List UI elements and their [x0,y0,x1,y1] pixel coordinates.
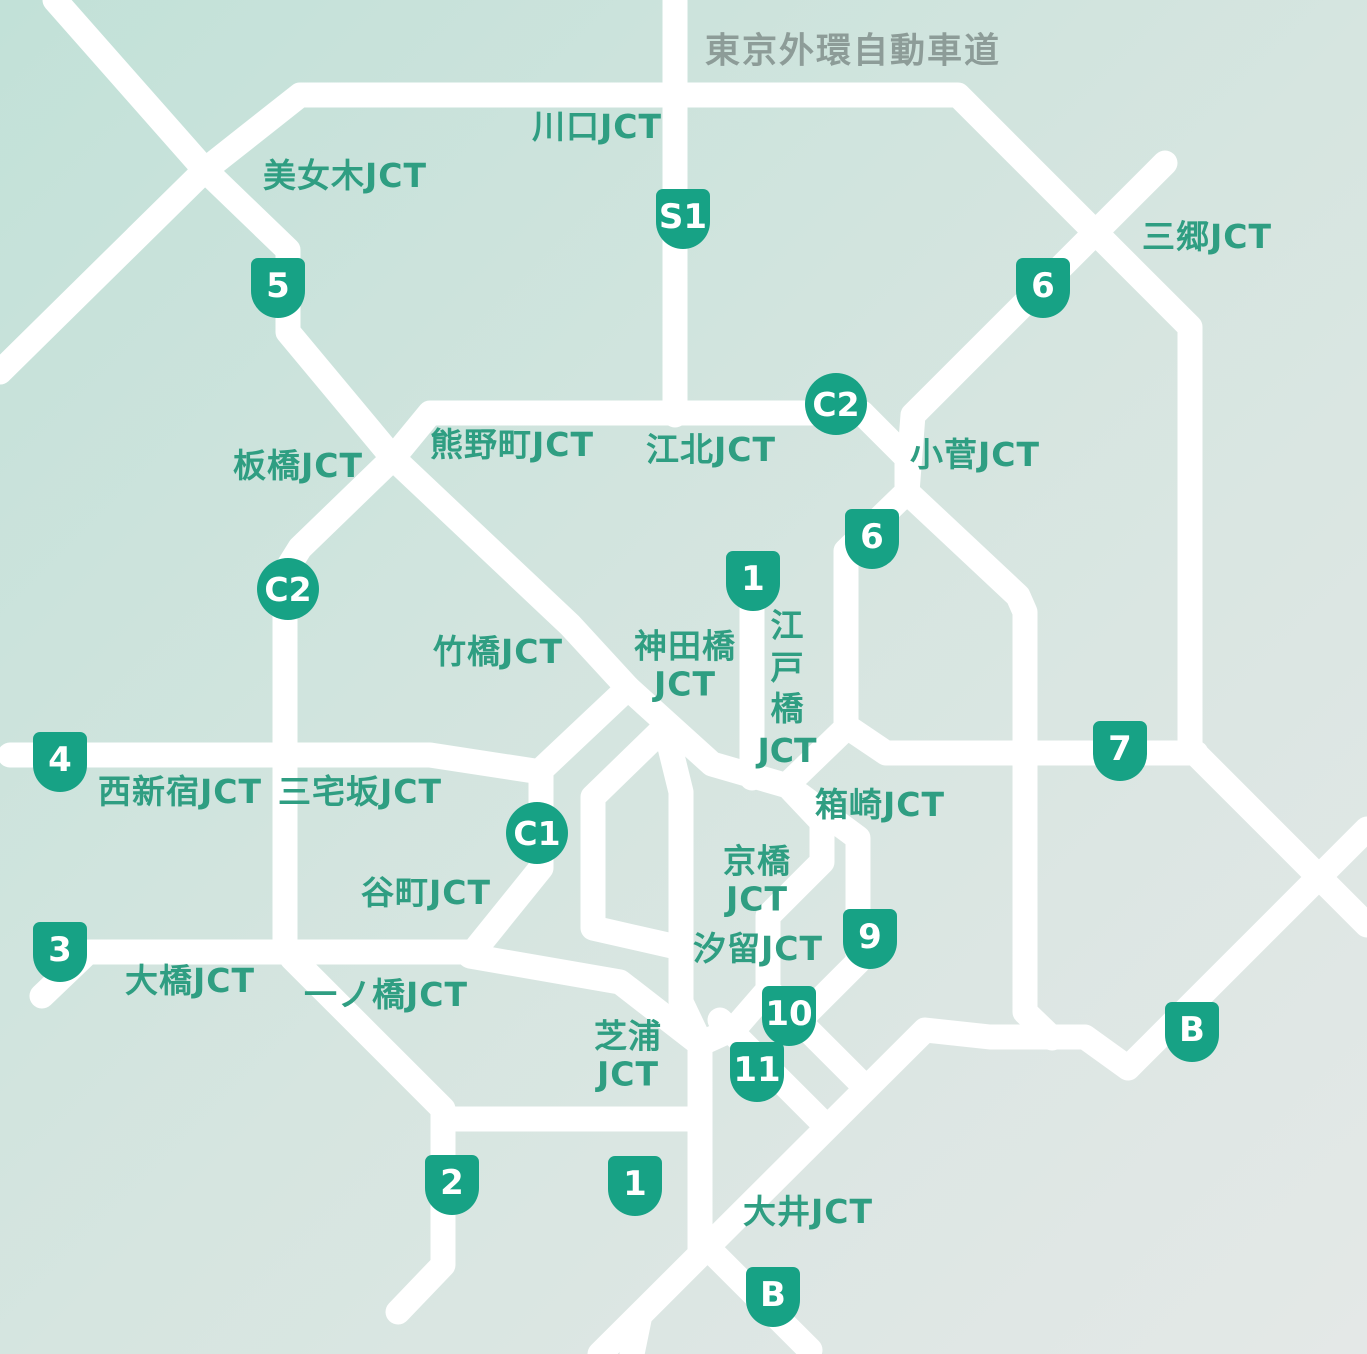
route-badge-c2-6: C2 [257,558,319,620]
junction-label-takebashi-jct: 竹橋JCT [433,633,563,671]
junction-label-edobashi-jct: 江 戸 橋 JCT [757,605,816,771]
map-title: 東京外環自動車道 [705,23,1001,74]
junction-label-kosuge-jct: 小菅JCT [910,436,1040,474]
junction-label-shibaura-jct: 芝浦 JCT [594,1017,662,1092]
junction-label-itabashi-jct: 板橋JCT [233,447,363,485]
junction-label-kumanocho-jct: 熊野町JCT [430,426,594,464]
route-badge-c1-9: C1 [506,802,568,864]
route-badge-s1-0: S1 [656,189,710,249]
junction-label-tanimachi-jct: 谷町JCT [361,874,491,912]
junction-label-ichinohashi-jct: 一ノ橋JCT [304,976,468,1014]
junction-label-ohashi-jct: 大橋JCT [125,962,255,1000]
route-badge-6-2: 6 [1016,258,1070,318]
route-badge-b-17: B [746,1267,800,1327]
route-badge-1-5: 1 [726,551,780,611]
route-badge-1-16: 1 [608,1156,662,1216]
route-badge-b-13: B [1165,1002,1219,1062]
junction-label-nishishinjuku-jct: 西新宿JCT [98,773,262,811]
road-gaikan-sw-arm [0,170,205,372]
road-bayshore-route [600,829,1367,1354]
road-gaikan-nw-arm [55,0,205,170]
route-badge-6-4: 6 [845,509,899,569]
route-badge-7-7: 7 [1093,721,1147,781]
junction-label-misato-jct: 三郷JCT [1142,218,1272,256]
junction-label-bijogi-jct: 美女木JCT [263,157,427,195]
route-badge-3-11: 3 [33,922,87,982]
junction-label-hakozaki-jct: 箱崎JCT [815,786,945,824]
route-badge-11-14: 11 [730,1042,784,1102]
route-badge-c2-3: C2 [805,373,867,435]
route-badge-10-12: 10 [762,986,816,1046]
route-badge-9-10: 9 [843,909,897,969]
junction-label-shiodome-jct: 汐留JCT [693,930,823,968]
route-badge-2-15: 2 [425,1155,479,1215]
route-badge-5-1: 5 [251,258,305,318]
junction-label-kyobashi-jct: 京橋 JCT [723,842,791,917]
route-badge-4-8: 4 [33,732,87,792]
junction-label-kandabashi-jct: 神田橋 JCT [634,627,736,702]
junction-label-oi-jct: 大井JCT [743,1193,873,1231]
shuto-expressway-map: 東京外環自動車道 川口JCT美女木JCT三郷JCT板橋JCT熊野町JCT江北JC… [0,0,1367,1354]
junction-label-kawaguchi-jct: 川口JCT [532,108,662,146]
junction-label-miyakezaka-jct: 三宅坂JCT [278,773,442,811]
junction-label-kohoku-jct: 江北JCT [646,431,776,469]
road-yaesu-loop [593,727,681,948]
